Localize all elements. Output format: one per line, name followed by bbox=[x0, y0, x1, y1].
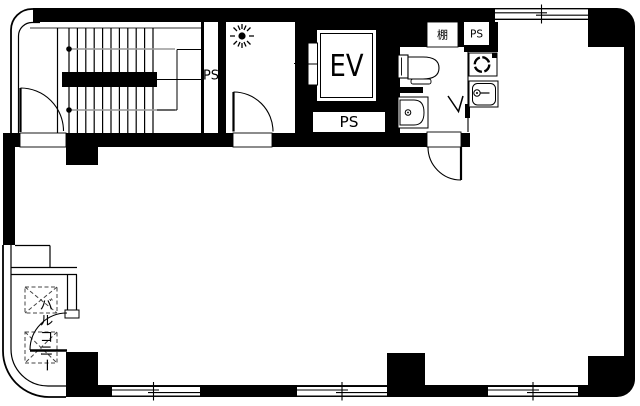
wall-band-1 bbox=[98, 133, 233, 147]
ps-shaft-wall-right bbox=[218, 22, 226, 133]
pier-bottom-center bbox=[387, 353, 425, 397]
balcony-label: バ ル コ ニ ー bbox=[38, 298, 54, 372]
elevator-label: EV bbox=[330, 49, 364, 84]
stair-handrail bbox=[62, 72, 157, 87]
floor-plan: PS EV PS 棚 bbox=[0, 0, 640, 406]
wall-band-3 bbox=[461, 133, 470, 147]
balcony-door-jamb bbox=[65, 310, 79, 318]
wall-top bbox=[33, 8, 495, 22]
shelf-label: 棚 bbox=[437, 28, 448, 42]
wall-left bbox=[3, 133, 15, 245]
elevator-ps-label: PS bbox=[340, 113, 359, 131]
hallway-door-threshold bbox=[233, 133, 272, 147]
wall-right bbox=[624, 45, 635, 358]
stair-door-threshold bbox=[20, 133, 66, 147]
balcony-label-char-5: ー bbox=[38, 358, 54, 372]
wall-toilet-partition bbox=[395, 87, 423, 93]
stair-guide-dot-1 bbox=[66, 46, 72, 52]
ceiling-light-icon bbox=[230, 24, 254, 48]
bathroom-door-threshold bbox=[427, 132, 461, 147]
kitchen-ps-label: PS bbox=[470, 29, 483, 41]
balcony-label-char-1: バ bbox=[40, 298, 54, 314]
floor-plan-canvas: PS EV PS 棚 bbox=[0, 0, 640, 406]
kitchen-sink-fixture bbox=[469, 81, 498, 107]
wall-shelf-ps-divider bbox=[458, 22, 464, 47]
stair-guide-dot-2 bbox=[66, 107, 72, 113]
pier-stair-bottom bbox=[66, 133, 98, 165]
ps-shaft-stair: PS bbox=[203, 69, 219, 84]
wall-stair-south-left bbox=[3, 133, 20, 147]
pier-balcony bbox=[66, 352, 98, 397]
wall-toilet-top bbox=[400, 22, 427, 47]
round-burner-fixture bbox=[469, 53, 497, 76]
balcony-label-char-2: ル bbox=[40, 314, 54, 330]
wash-basin-fixture bbox=[398, 97, 428, 128]
balcony-label-char-4: ニ bbox=[40, 344, 54, 360]
wall-corner-top-right bbox=[588, 8, 635, 47]
ps-shaft-stair-label: PS bbox=[203, 69, 219, 84]
